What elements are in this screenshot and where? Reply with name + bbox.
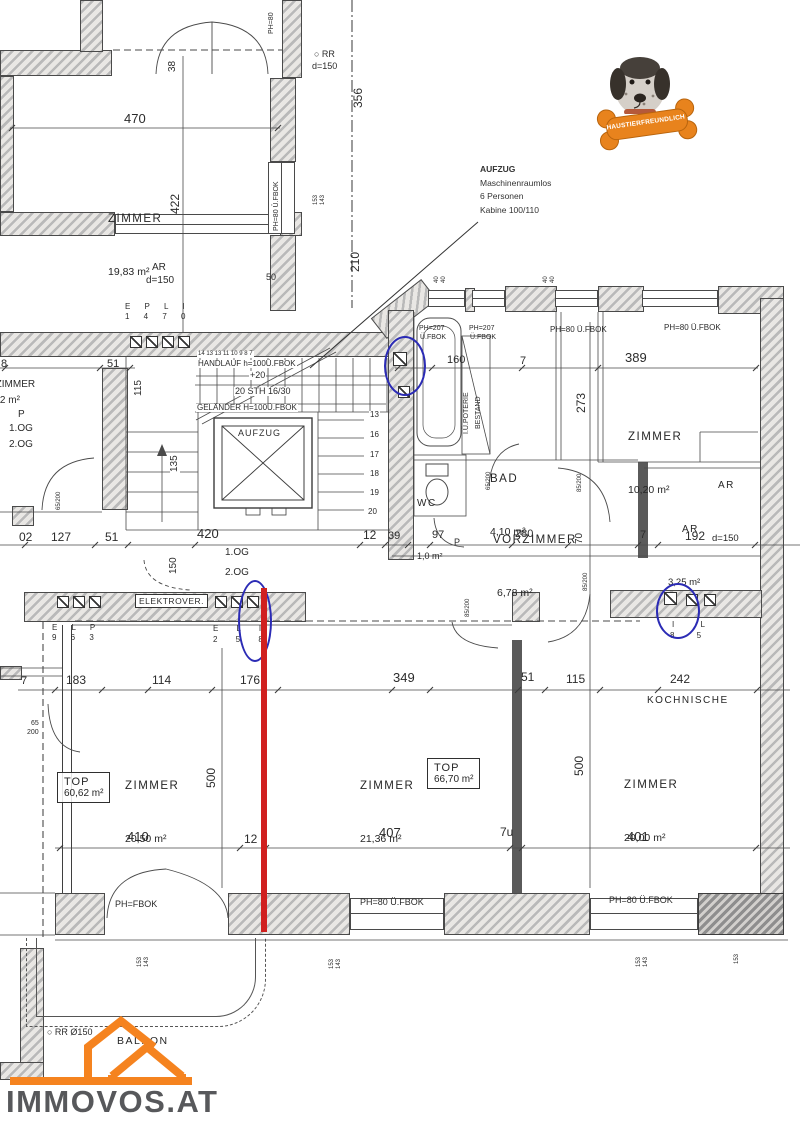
wall [0,212,115,236]
dim-label: 4,02 m² [0,396,20,406]
dim-label: 9 6 3 [52,634,100,642]
dim-label: P [454,538,460,547]
wall-bottom [228,893,350,935]
dim-label: 2.OG [225,568,249,578]
unit-label-top-right: TOP 66,70 m² [427,758,480,789]
wall-bottom [55,893,105,935]
dim-label: VORZIMMER [0,380,35,390]
logo-text: IMMOVOS.AT [6,1084,218,1120]
dim-label: 85/200 [465,599,471,617]
unit-label-top-left: TOP 60,62 m² [57,772,110,803]
dim-label: +20 [249,371,266,380]
dim-label: PH=80 Ü.FBOK [273,180,280,232]
electrical-symbol-icon [162,336,174,348]
dim-label: 50 [266,273,276,282]
elektro-box-label: ELEKTROVER. [135,594,208,608]
dim-label: 153 [313,195,319,205]
dim-label: 20 STH 16/30 [234,387,292,396]
dim-label: 51 [105,531,118,543]
dim-label: PH=FBOK [115,900,157,909]
floorplan-canvas: ZIMMER 19,83 m² ZIMMER 10,20 m² BAD 4,10… [0,0,800,1122]
dim-label: 1 4 7 0 [125,313,191,321]
dim-label: PH=80 Ü.FBOK [550,326,607,334]
dim-label: 273 [575,393,587,413]
highlighted-wall-red-line [261,588,267,932]
dim-label: 02 [19,531,32,543]
elevator-annotation: AUFZUG Maschinenraumlos 6 Personen Kabin… [480,163,551,217]
room-label-zimmer-br: ZIMMER 20,00 m² [624,738,678,886]
electrical-symbol-icon [178,336,190,348]
dim-label: 200 [27,729,39,736]
dim-label: 7 [640,530,646,541]
dim-label: PH=80 Ü.FBOK [360,898,424,907]
window [428,290,465,307]
dim-label: 7u [500,826,513,838]
window [642,290,718,307]
dim-label: 1.OG [225,548,249,558]
dim-label: PH=80 [268,12,275,34]
dim-label: AR [152,263,166,273]
dim-label: 97 [432,530,444,541]
electrical-symbol-icon [57,596,69,608]
room-label-zimmer-bc: ZIMMER 21,36 m² [360,739,414,887]
room-label-vorzimmer: VORZIMMER 6,78 m² [493,493,577,641]
room-label-ar-top: AR d=150 [712,440,739,584]
dim-label: 85/200 [583,572,589,592]
room-label-zimmer-tl: ZIMMER 19,83 m² [108,172,162,320]
dim-label: 153 [329,959,335,969]
blue-circle-annotation [656,583,700,639]
dim-label: ○ RR [314,50,335,59]
dim-label: 38 [168,61,178,72]
wall [12,506,34,526]
dim-label: d=150 [312,62,337,71]
wall [0,50,112,76]
immovos-logo: IMMOVOS.AT [0,1014,280,1122]
dim-label: P [18,410,25,420]
dim-label: 65/200 [56,492,62,510]
dim-label: Ü.FBOK [420,334,446,341]
wall [0,666,22,680]
dim-label: 17 [369,451,380,459]
dim-label: 153 [636,957,642,967]
wall [282,0,302,78]
dim-label: 8 [1,359,7,370]
dim-label: 153 [137,957,143,967]
dim-label: 349 [393,671,415,684]
dim-label: PH=207 [419,325,445,332]
dim-label: 143 [643,957,649,967]
blue-circle-annotation [384,336,426,396]
dim-label: 143 [144,957,150,967]
dim-label: 127 [51,531,71,543]
dim-label: 210 [349,252,361,272]
dim-label: 410 [127,830,149,843]
dim-label: 420 [197,527,219,540]
dim-label: 150 [169,557,179,574]
stair-direction-arrow-icon [157,444,167,456]
dim-label: 500 [205,767,217,789]
dim-label: 20 [367,508,378,516]
dim-label: 40 [441,276,447,283]
dim-label: 51 [107,359,119,370]
dim-label: PH=80 Ü.FBOK [609,896,673,905]
dim-label: 135 [170,454,180,473]
electrical-symbol-icon [146,336,158,348]
dim-label: I.Ü.POTERIE [463,392,470,434]
dim-label: 39 [388,531,400,542]
dim-label: E L P [52,624,101,632]
electrical-symbol-icon [73,596,85,608]
dim-label: 389 [625,351,647,364]
wall [598,286,644,312]
electrical-symbol-icon [89,596,101,608]
dim-label: E P L I [125,303,191,311]
dim-label: PH=80 Ü.FBOK [664,324,721,332]
dim-label: Ü.FBOK [470,334,496,341]
dim-label: 18 [369,470,380,478]
elevator-label: AUFZUG [236,428,283,438]
dim-label: 51 [521,671,534,683]
dim-label: 1.OG [9,424,33,434]
dim-label: 65 [31,720,39,727]
wall-bottom [444,893,590,935]
blue-circle-annotation [238,580,272,662]
dim-label: 470 [124,112,146,125]
dim-label: 115 [134,379,144,397]
wall [505,286,557,312]
dim-label: 114 [152,674,171,686]
wall [0,76,14,212]
dim-label: 12 [244,833,257,845]
dim-label: 65/200 [486,472,492,490]
dim-label: HANDLAUF h=100Ü.FBOK [197,360,297,368]
dim-label: 16 [369,431,380,439]
dim-label: 7 [520,356,526,367]
dim-label: 40 [434,276,440,283]
dim-label: 115 [566,673,585,685]
dim-label: d=150 [146,276,174,286]
dim-label: 422 [169,194,181,214]
pet-friendly-badge: HAUSTIERFREUNDLICH [596,54,700,150]
dim-label: GELÄNDER H=100Ü.FBOK [196,404,298,412]
dim-label: 280 [515,529,533,540]
room-label-kochnische: KOCHNISCHE [647,655,729,748]
dim-label: 2.OG [9,440,33,450]
wall-bottom-corner [698,893,784,935]
room-label-zimmer-bl: ZIMMER 20,50 m² [125,739,179,887]
dim-label: 401 [627,830,649,843]
electrical-symbol-icon [704,594,716,606]
wall-thin [62,625,72,893]
dim-label: 192 [685,530,705,542]
wall-right-outer [760,298,784,935]
dim-label: 407 [379,826,401,839]
wall [102,368,128,510]
wall [270,78,296,162]
dim-label: 40 [550,276,556,283]
dim-label: 153 [734,954,740,964]
dim-label: 143 [320,195,326,205]
dim-label: 14 13 13 11 10 9 8 7 [197,351,254,357]
dim-label: 143 [336,959,342,969]
window [472,290,505,307]
dim-label: 40 [543,276,549,283]
dim-label: 242 [670,673,690,685]
dim-label: 70 [575,533,585,544]
dim-label: 183 [66,674,86,686]
wall [0,332,392,357]
dim-label: 160 [447,355,465,366]
dim-label: 13 [369,411,380,419]
dim-label: 500 [573,755,585,777]
dim-label: 176 [240,674,260,686]
dim-label: 85/200 [577,474,583,492]
floorplan-page: { "logo": {"text": "IMMOVOS.AT"}, "badge… [0,0,800,1122]
dim-label: 7 [21,676,27,687]
window [555,290,598,307]
dim-label: 12 [363,529,376,541]
dim-label: 356 [352,88,364,108]
electrical-symbol-icon [215,596,227,608]
dim-label: BESTAND [475,396,482,429]
electrical-symbol-icon [130,336,142,348]
wall [80,0,103,52]
dim-label: 19 [369,489,380,497]
dim-label: PH=207 [469,325,495,332]
